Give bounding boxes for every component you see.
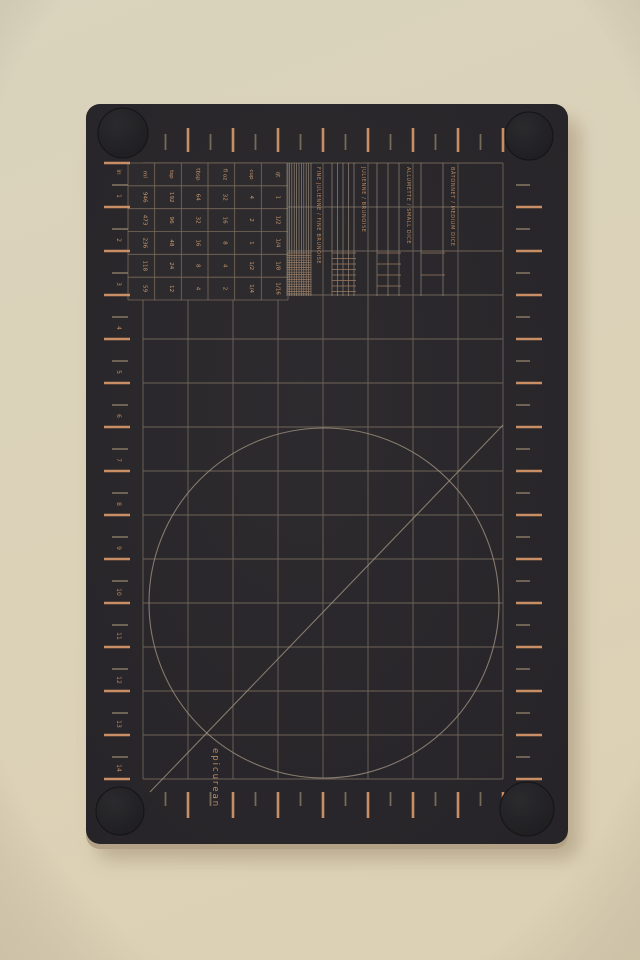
product-photo: mltsptbspfl ozcupqt946192643241473963216… <box>0 0 640 960</box>
board-photo-canvas: mltsptbspfl ozcupqt946192643241473963216… <box>0 0 640 960</box>
photo-vignette <box>0 0 640 960</box>
